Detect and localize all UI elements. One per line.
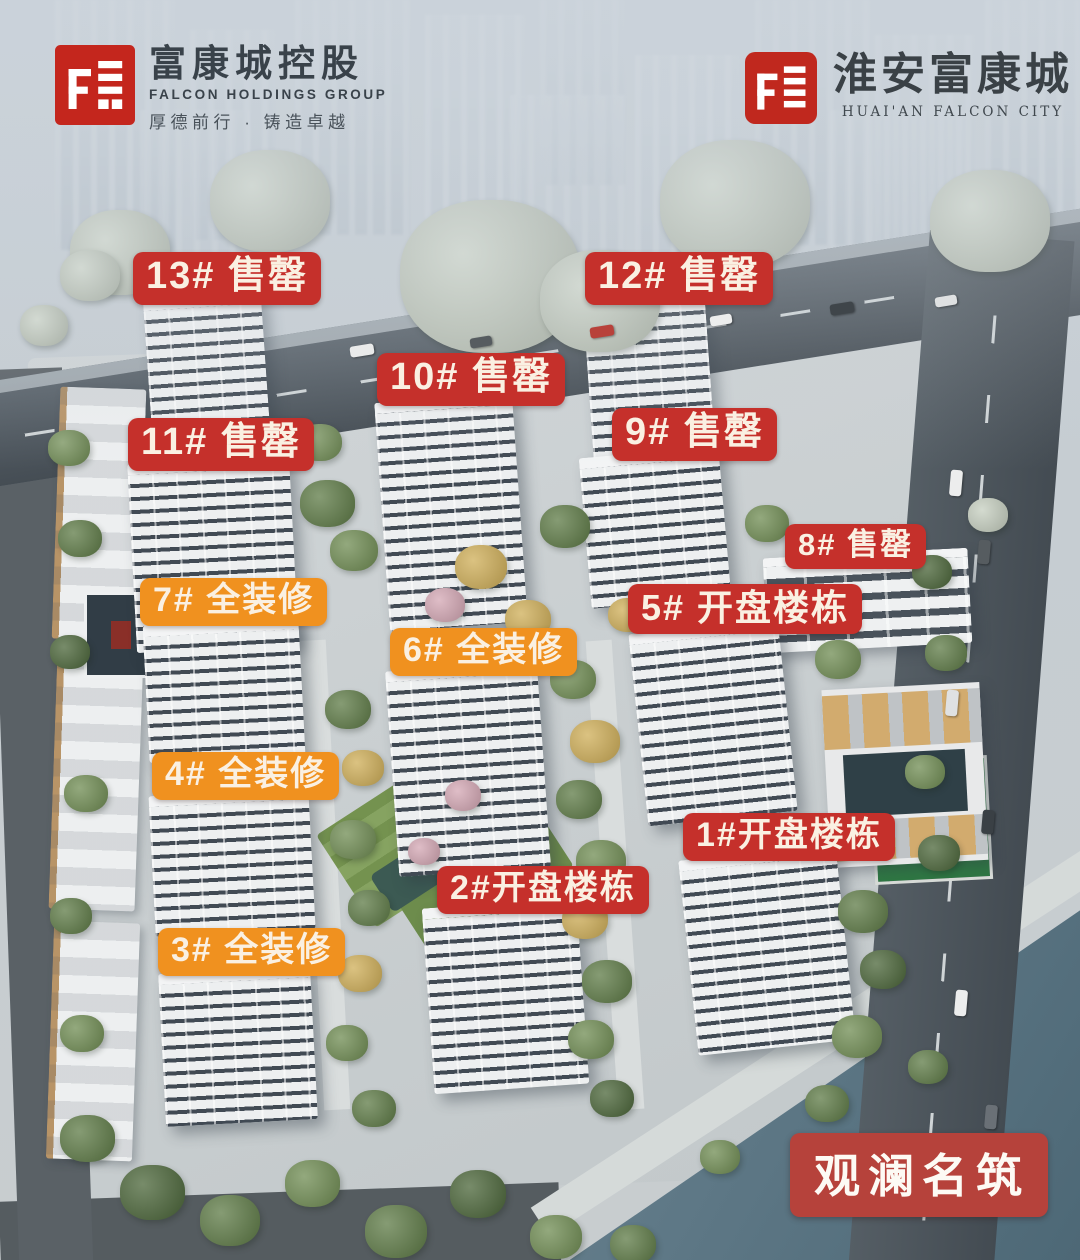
tree <box>200 1195 260 1246</box>
building-label-8: 8# 售罄 <box>785 524 926 569</box>
project-logo-text: 淮安富康城 HUAI'AN FALCON CITY <box>833 52 1073 120</box>
tree <box>352 1090 396 1127</box>
tree <box>925 635 967 671</box>
tree <box>908 1050 948 1084</box>
tree <box>570 720 620 763</box>
building-label-4: 4# 全装修 <box>152 752 339 800</box>
tree <box>210 150 330 252</box>
tree <box>556 780 602 819</box>
building-tower <box>143 618 306 763</box>
project-name-plaque: 观澜名筑 <box>790 1133 1048 1217</box>
developer-name-en: FALCON HOLDINGS GROUP <box>149 87 387 102</box>
car <box>981 810 995 835</box>
tree <box>60 250 120 301</box>
tree <box>930 170 1050 272</box>
tree <box>348 890 390 926</box>
tree <box>805 1085 849 1122</box>
project-logo: 淮安富康城 HUAI'AN FALCON CITY <box>745 52 1073 124</box>
tree <box>905 755 945 789</box>
tree <box>860 950 906 989</box>
tree <box>745 505 789 542</box>
tree <box>408 838 440 865</box>
building-label-6: 6# 全装修 <box>390 628 577 676</box>
tree <box>425 588 465 622</box>
building-label-13: 13# 售罄 <box>133 252 321 305</box>
tree <box>455 545 507 589</box>
tree <box>530 1215 582 1259</box>
tree <box>300 480 355 527</box>
project-name-cn: 淮安富康城 <box>833 52 1073 98</box>
tree <box>540 505 590 548</box>
tree <box>838 890 888 933</box>
building-label-2: 2#开盘楼栋 <box>437 866 649 914</box>
developer-name-cn: 富康城控股 <box>149 45 387 84</box>
car <box>977 540 991 565</box>
car <box>945 690 959 717</box>
tree <box>700 1140 740 1174</box>
building-tower <box>158 966 318 1127</box>
tree <box>582 960 632 1003</box>
tree <box>365 1205 427 1258</box>
tree <box>50 898 92 934</box>
tree <box>325 690 371 729</box>
building-tower <box>628 619 797 827</box>
tree <box>48 430 90 466</box>
building-label-1: 1#开盘楼栋 <box>683 813 895 861</box>
building-label-10: 10# 售罄 <box>377 353 565 406</box>
tree <box>450 1170 506 1218</box>
tree <box>568 1020 614 1059</box>
building-label-7: 7# 全装修 <box>140 578 327 626</box>
tree <box>342 750 384 786</box>
tree <box>60 1115 115 1162</box>
falcon-logo-icon <box>55 45 135 125</box>
car <box>954 990 968 1017</box>
tree <box>590 1080 634 1117</box>
developer-logo-text: 富康城控股 FALCON HOLDINGS GROUP 厚德前行 · 铸造卓越 <box>149 45 387 133</box>
tree <box>832 1015 882 1058</box>
tree <box>660 140 810 268</box>
tree <box>326 1025 368 1061</box>
tree <box>445 780 481 811</box>
tree <box>60 1015 104 1052</box>
storefront-door <box>111 621 131 649</box>
tree <box>58 520 102 557</box>
car <box>949 470 963 497</box>
building-tower <box>678 844 856 1055</box>
tree <box>20 305 68 346</box>
developer-logo: 富康城控股 FALCON HOLDINGS GROUP 厚德前行 · 铸造卓越 <box>55 45 387 133</box>
school-courtyard <box>843 749 968 817</box>
tree <box>120 1165 185 1220</box>
building-tower <box>148 788 315 937</box>
building-label-12: 12# 售罄 <box>585 252 773 305</box>
tree <box>285 1160 340 1207</box>
tree <box>610 1225 656 1260</box>
tree <box>330 530 378 571</box>
project-name-en: HUAI'AN FALCON CITY <box>833 104 1073 120</box>
tree <box>918 835 960 871</box>
building-label-5: 5# 开盘楼栋 <box>628 584 862 634</box>
tree <box>50 635 90 669</box>
falcon-city-logo-icon <box>745 52 817 124</box>
tree <box>815 640 861 679</box>
building-label-11: 11# 售罄 <box>128 418 314 471</box>
developer-slogan: 厚德前行 · 铸造卓越 <box>149 108 387 133</box>
site-plan-rendering: 13# 售罄12# 售罄10# 售罄11# 售罄9# 售罄8# 售罄7# 全装修… <box>0 0 1080 1260</box>
tree <box>64 775 108 812</box>
car <box>984 1105 998 1130</box>
tree <box>330 820 376 859</box>
building-label-9: 9# 售罄 <box>612 408 777 461</box>
tree <box>968 498 1008 532</box>
building-label-3: 3# 全装修 <box>158 928 345 976</box>
